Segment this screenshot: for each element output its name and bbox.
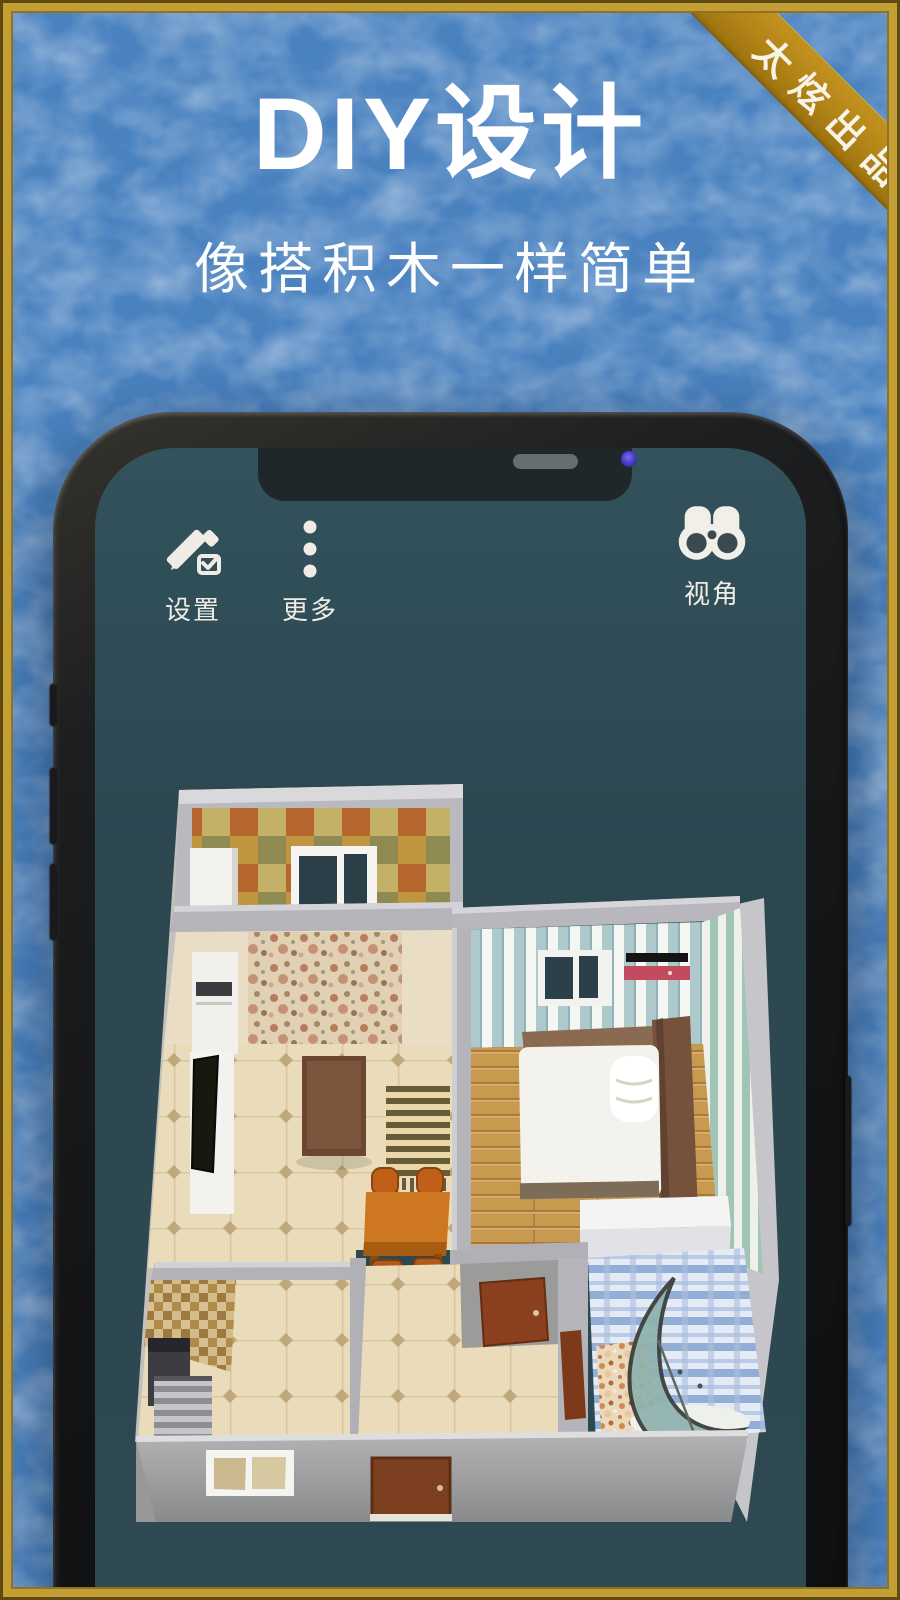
settings-label: 设置 bbox=[128, 590, 258, 627]
page-subtitle: 像搭积木一样简单 bbox=[0, 224, 900, 304]
coffee-table bbox=[296, 1056, 372, 1170]
promo-poster: DIY设计 像搭积木一样简单 太炫出品 bbox=[0, 0, 900, 1600]
room-kitchen bbox=[138, 1262, 356, 1440]
more-label: 更多 bbox=[245, 590, 375, 627]
binoculars-icon bbox=[647, 496, 777, 568]
bedroom-window bbox=[538, 950, 612, 1006]
power-button bbox=[845, 1076, 851, 1226]
view-angle-label: 视角 bbox=[647, 574, 777, 611]
phone-notch bbox=[258, 448, 632, 501]
view-angle-button[interactable]: 视角 bbox=[647, 496, 777, 611]
phone-mockup: 设置 更多 bbox=[53, 412, 848, 1600]
floral-wallpaper bbox=[248, 932, 402, 1044]
front-camera bbox=[621, 451, 637, 467]
front-window bbox=[206, 1450, 294, 1496]
double-bed bbox=[519, 1016, 698, 1216]
pencil-edit-icon bbox=[128, 508, 258, 580]
speaker-grille bbox=[513, 454, 578, 469]
floorplan-canvas[interactable] bbox=[118, 780, 780, 1525]
mute-switch bbox=[50, 684, 56, 726]
room-balcony bbox=[170, 784, 463, 954]
front-door bbox=[370, 1458, 452, 1521]
hallway-door bbox=[480, 1278, 548, 1346]
outer-wall-front bbox=[136, 1430, 748, 1522]
volume-down-button bbox=[50, 864, 56, 940]
more-button[interactable]: 更多 bbox=[245, 508, 375, 627]
room-living bbox=[148, 930, 452, 1308]
volume-up-button bbox=[50, 768, 56, 844]
tv-cabinet bbox=[190, 1052, 234, 1214]
room-hallway bbox=[350, 1258, 588, 1442]
more-dots-icon bbox=[245, 508, 375, 580]
app-screen: 设置 更多 bbox=[95, 448, 806, 1600]
settings-button[interactable]: 设置 bbox=[128, 508, 258, 627]
air-conditioner bbox=[626, 953, 688, 962]
room-bedroom bbox=[450, 896, 763, 1274]
room-bathroom bbox=[588, 1248, 766, 1450]
fridge bbox=[192, 952, 238, 1054]
